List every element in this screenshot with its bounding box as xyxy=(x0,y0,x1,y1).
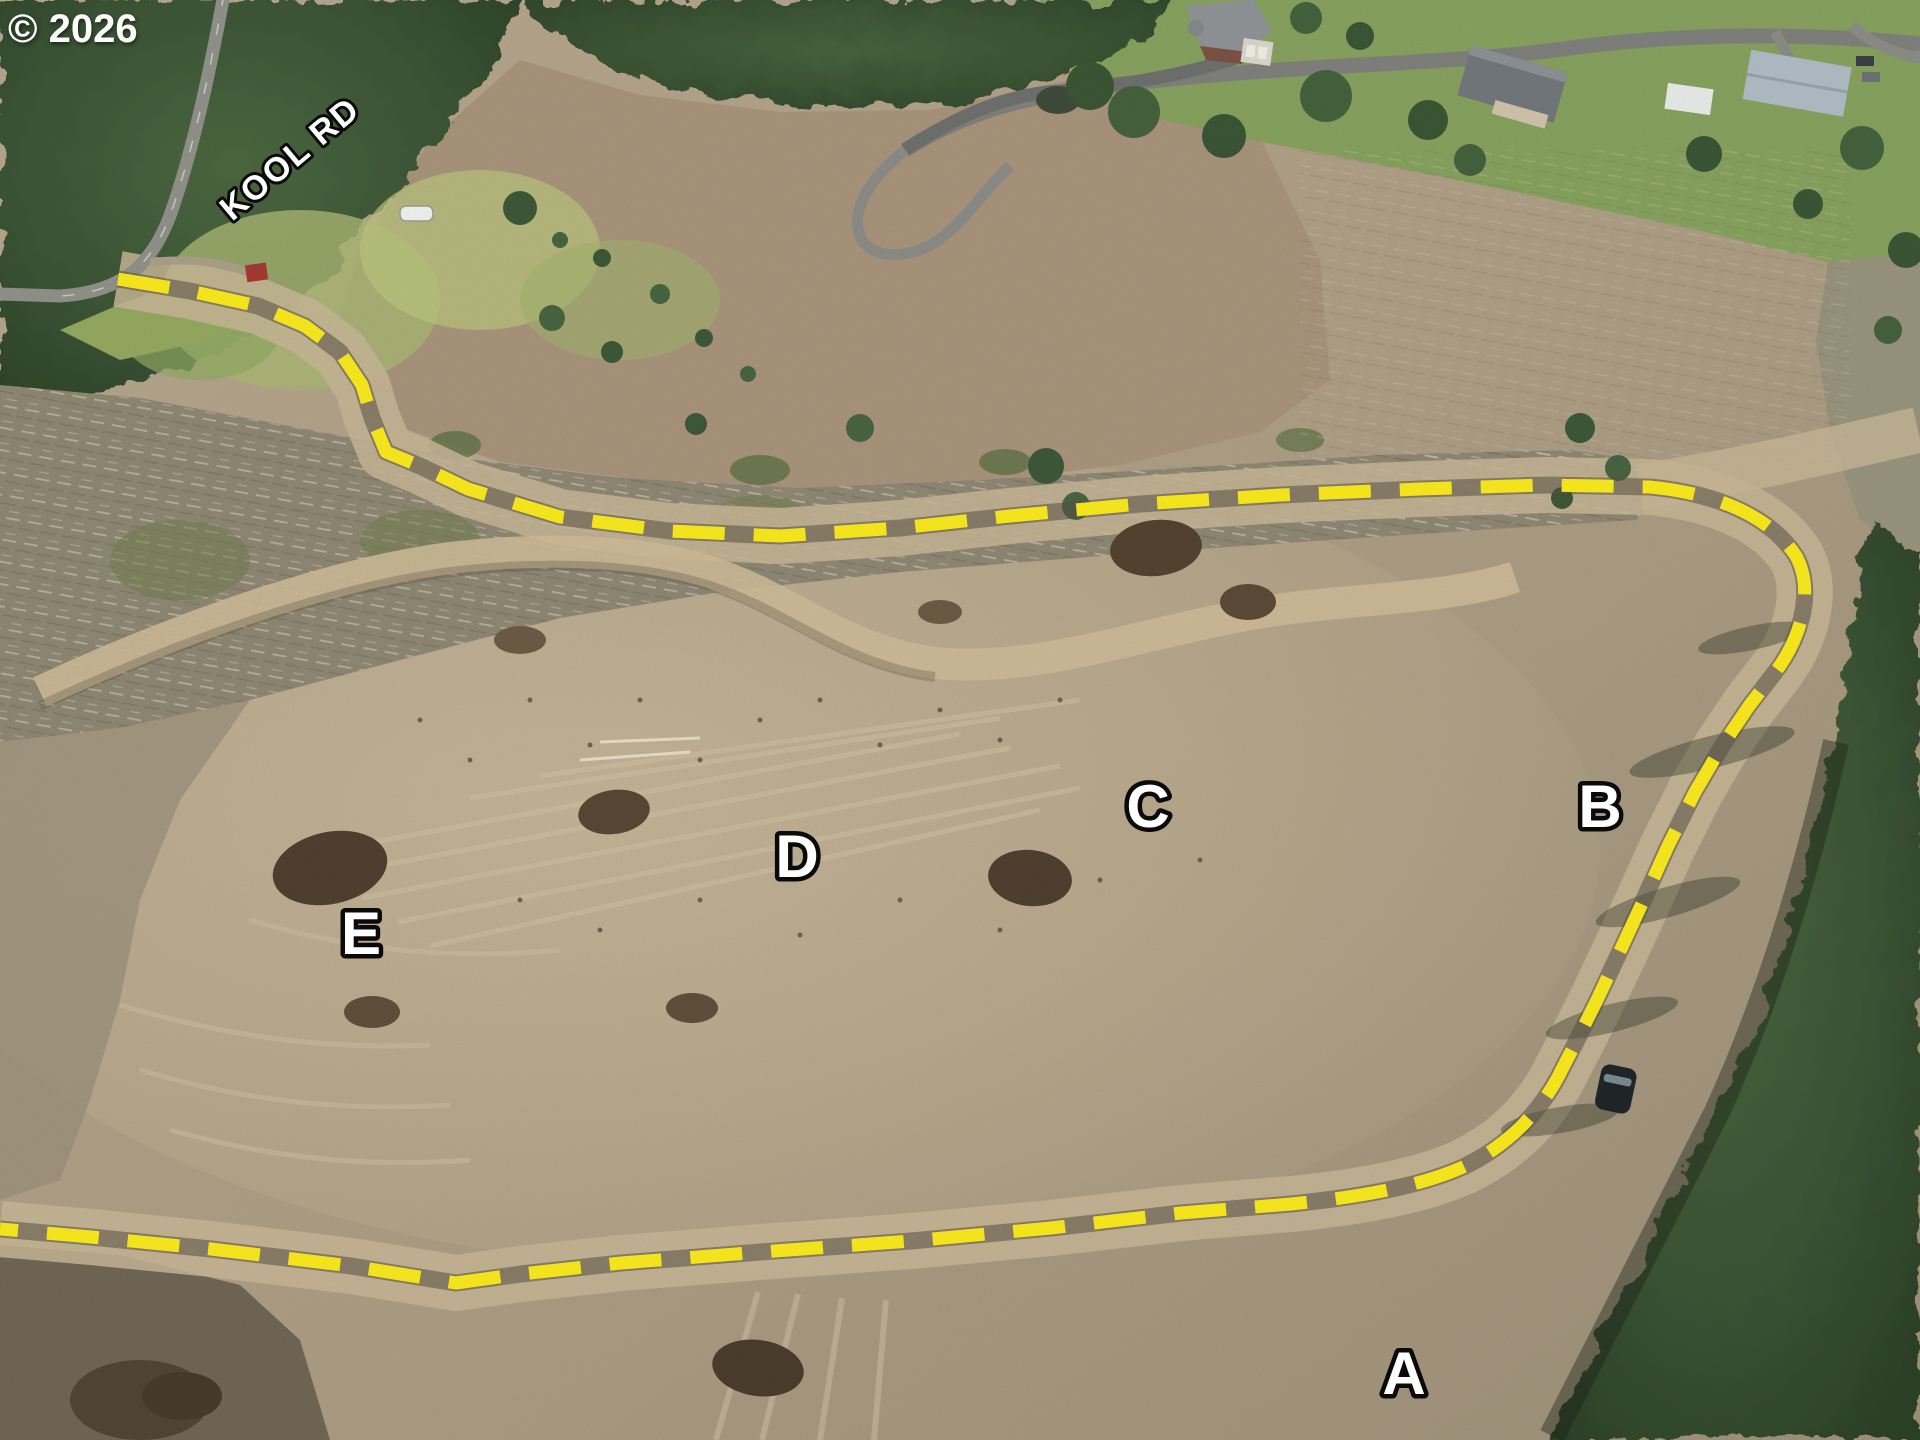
terrain-graphic: © 2026 KOOL RD A B C D E xyxy=(0,0,1920,1440)
lot-label-a: A xyxy=(1382,1340,1425,1407)
photo-grain-overlay xyxy=(0,0,1920,1440)
lot-label-c: C xyxy=(1126,773,1169,840)
copyright-watermark: © 2026 xyxy=(8,7,138,51)
lot-label-e: E xyxy=(341,900,381,967)
lot-label-b: B xyxy=(1578,773,1621,840)
aerial-listing-photo: © 2026 KOOL RD A B C D E xyxy=(0,0,1920,1440)
lot-label-d: D xyxy=(775,823,818,890)
